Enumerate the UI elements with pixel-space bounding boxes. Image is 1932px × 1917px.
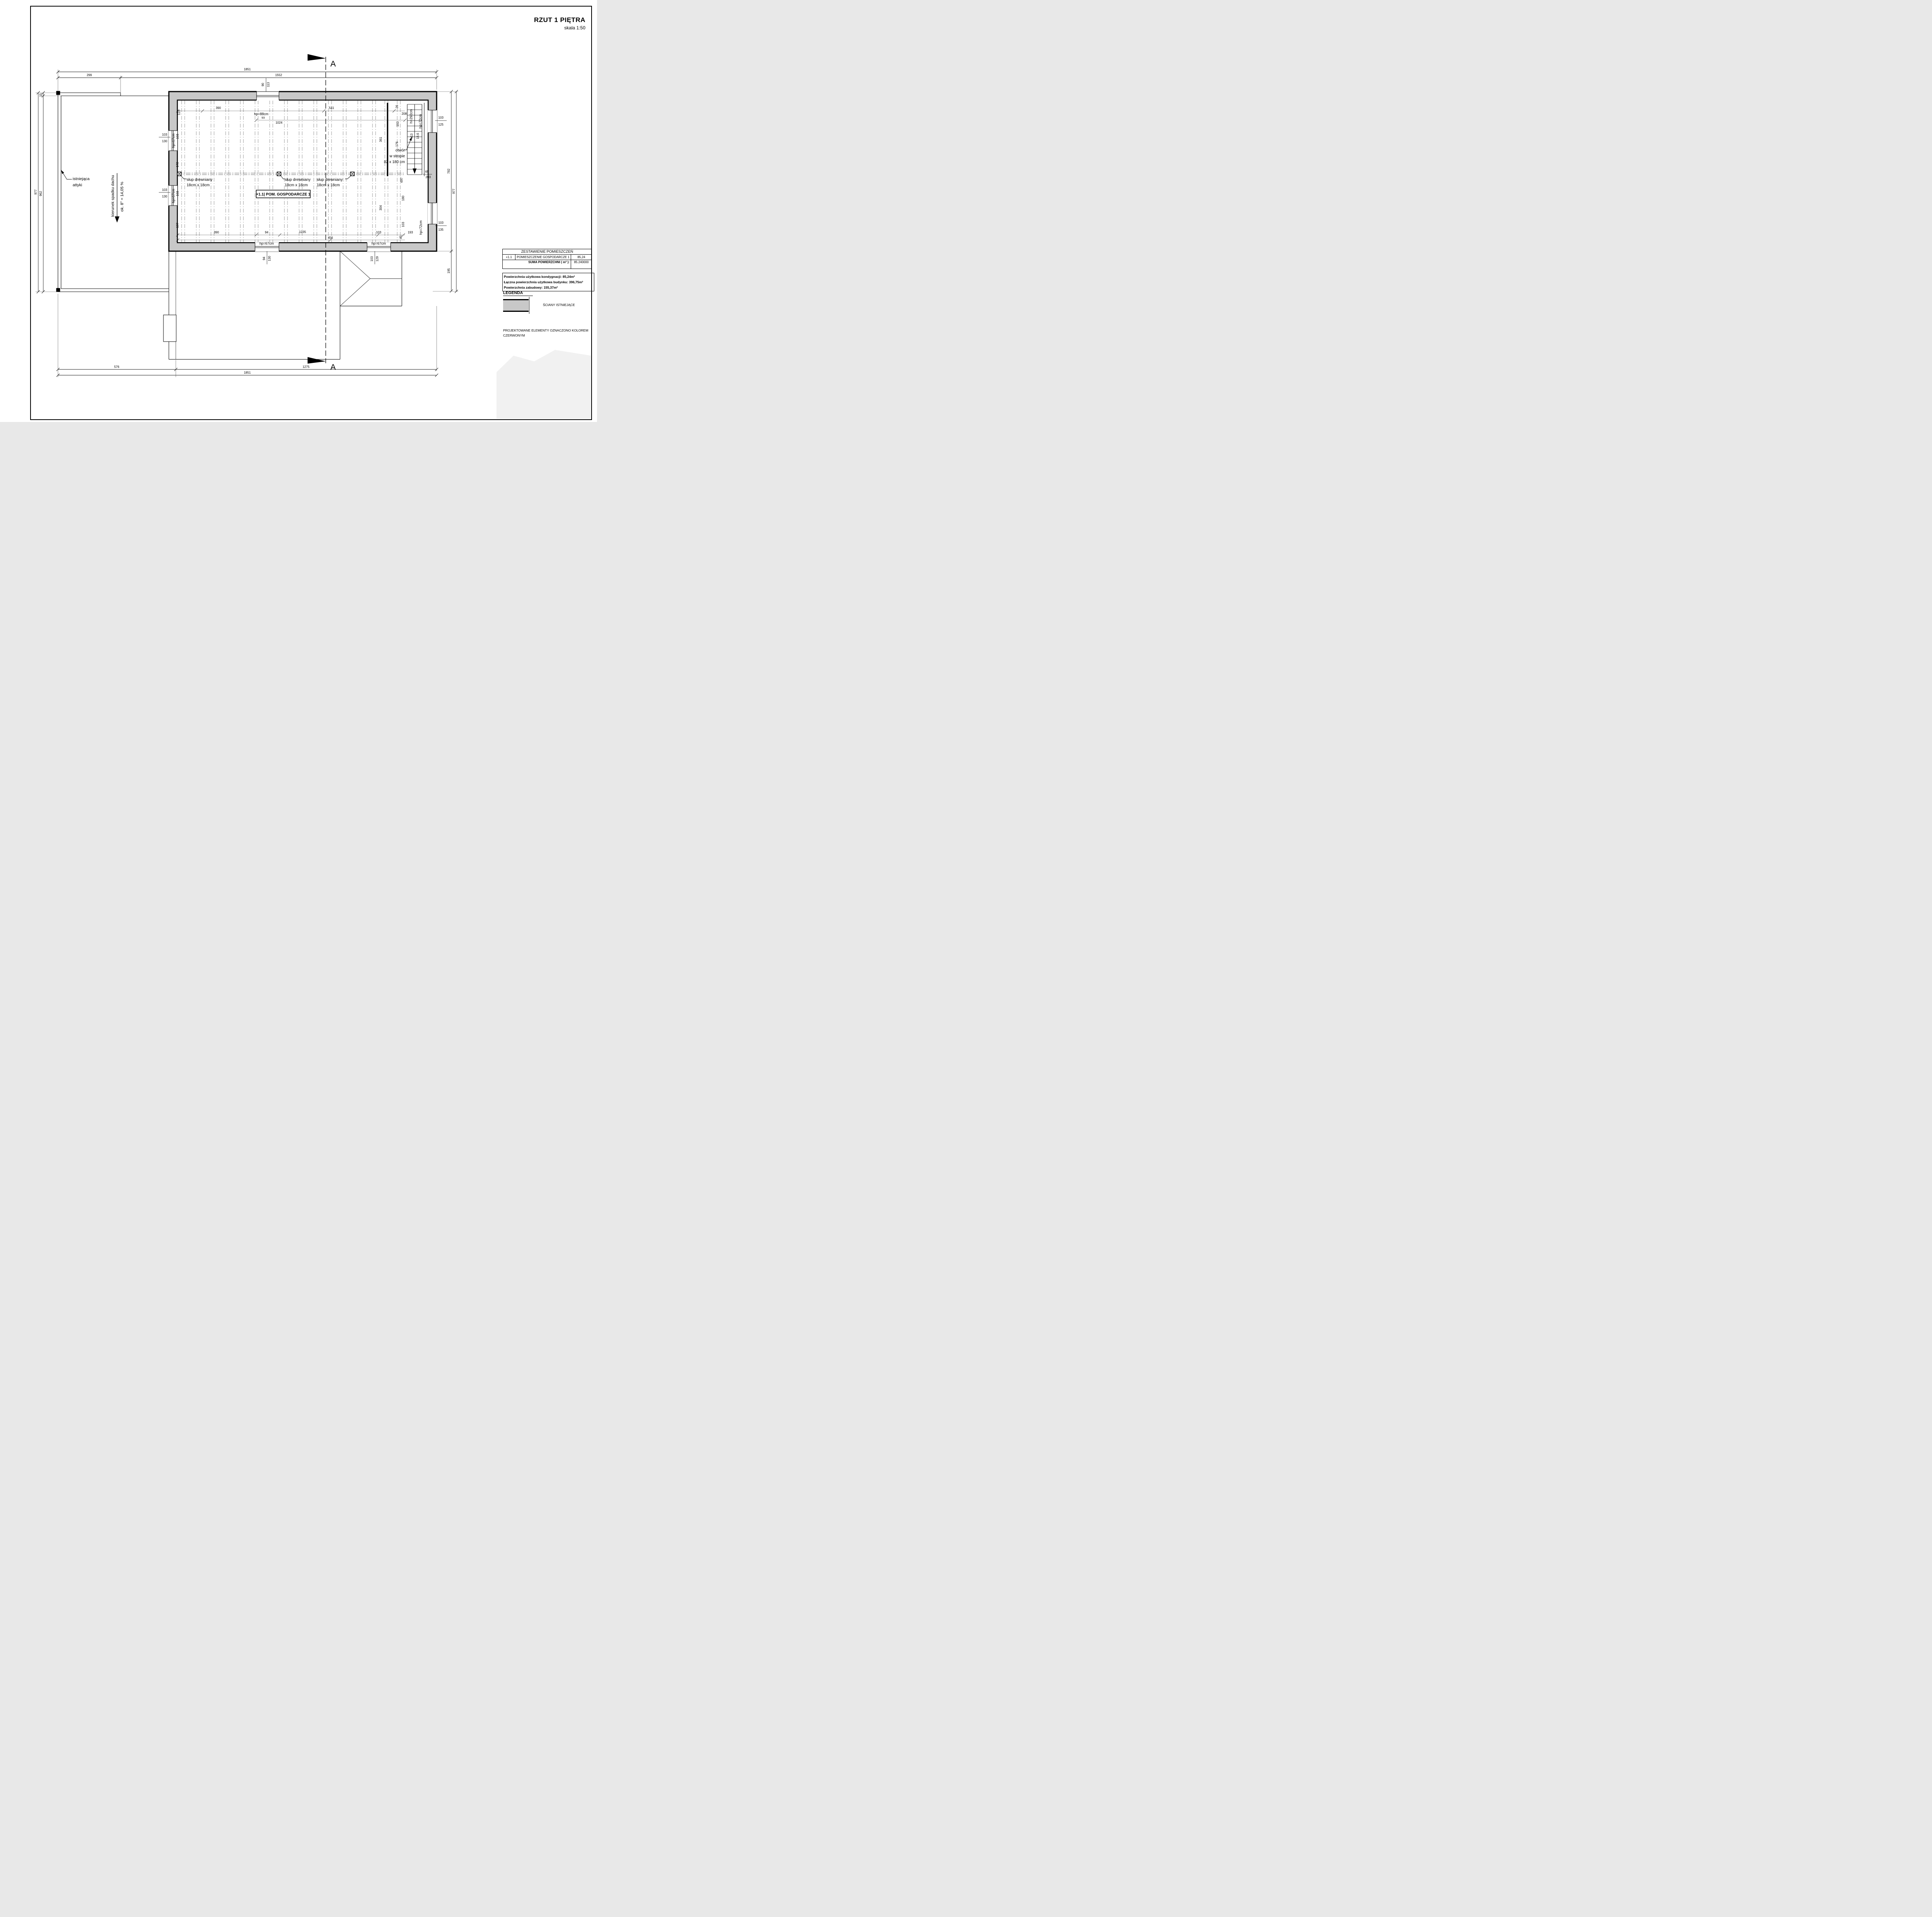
floor-plan: A A +1.1| POM. GOSPODARCZE 1 istniejąca … bbox=[0, 0, 597, 422]
dim-botwin1-w: 94 bbox=[262, 257, 266, 260]
existing-walls bbox=[169, 92, 437, 251]
post-label-3b: 18cm x 18cm bbox=[317, 183, 340, 187]
designed-elements-note: PROJEKTOWANE ELEMENTY OZNACZONO KOLOREM … bbox=[503, 328, 597, 338]
dim-i65: 65 bbox=[425, 170, 429, 173]
drawing-sheet: A A +1.1| POM. GOSPODARCZE 1 istniejąca … bbox=[0, 0, 597, 422]
dim-rightwin1-h: 125 bbox=[438, 123, 444, 126]
dim-i93: 93 bbox=[262, 116, 265, 119]
opening-note-line1: otwór bbox=[396, 148, 405, 153]
window-right-1 bbox=[428, 110, 437, 133]
dim-left-top: 15 bbox=[39, 93, 43, 97]
window-bottom-1 bbox=[255, 242, 279, 264]
room-name-cell: POMIESZCZENIE GOSPODARCZE 1 bbox=[515, 255, 571, 260]
roof-slope-note: ok. 8° = 14,05 % bbox=[120, 182, 124, 211]
dim-bb94: 94 bbox=[265, 231, 269, 234]
dim-botwin2-w: 103 bbox=[370, 256, 374, 262]
section-label-top: A bbox=[330, 60, 336, 68]
dim-topwin-h: 113 bbox=[267, 82, 270, 87]
dim-il172: 172 bbox=[176, 162, 179, 167]
table-title: ZESTAWIENIE POMIESZCZEŃ bbox=[503, 249, 592, 255]
window-right-2 bbox=[428, 203, 437, 224]
dim-rightwin1-w: 103 bbox=[438, 116, 444, 119]
dim-il103b: 103 bbox=[176, 191, 179, 196]
dim-left-outer: 977 bbox=[34, 189, 37, 195]
dim-bb1235: 1235 bbox=[299, 230, 306, 234]
dim-top-left: 299 bbox=[87, 73, 92, 77]
drawing-scale: skala 1:50 bbox=[534, 25, 585, 31]
dim-i180: 180 bbox=[401, 196, 405, 201]
dim-il103a: 103 bbox=[176, 134, 179, 139]
dim-bb103: 103 bbox=[376, 231, 381, 234]
drawing-title: RZUT 1 PIĘTRA bbox=[534, 16, 585, 24]
room-schedule-table: ZESTAWIENIE POMIESZCZEŃ +1.1 POMIESZCZEN… bbox=[502, 249, 592, 269]
dim-rightwin2-hp: hp=72cm bbox=[419, 220, 423, 235]
dim-botwin1-hp: hp=67cm bbox=[259, 242, 274, 245]
dim-i176: 176 bbox=[395, 141, 399, 147]
note-line-2: CZERWONYM bbox=[503, 333, 597, 338]
attic-note-line2: attyki bbox=[73, 183, 82, 187]
dim-botwin2-hp: hp=67cm bbox=[371, 242, 386, 245]
post-label-1b: 18cm x 18cm bbox=[187, 183, 209, 187]
post-label-1a: słup drewniany bbox=[187, 178, 213, 182]
dim-i390: 390 bbox=[216, 106, 221, 110]
dim-bottom-total: 1851 bbox=[244, 371, 251, 374]
room-label: +1.1| POM. GOSPODARCZE 1 bbox=[256, 192, 311, 197]
summary-line-2: Łączna powierzchnia użytkowa budynku: 39… bbox=[504, 279, 593, 285]
sum-value-cell: 85.240000 bbox=[571, 260, 592, 269]
section-flag-bottom bbox=[308, 357, 326, 364]
roof-slope-arrow bbox=[115, 216, 119, 223]
dim-il197: 197 bbox=[176, 223, 179, 228]
dim-i1024: 1024 bbox=[276, 121, 282, 124]
dim-bb45: 45 bbox=[399, 235, 403, 239]
dim-bb390: 390 bbox=[214, 231, 219, 234]
dim-bb456: 456 bbox=[328, 236, 333, 240]
post-label-2a: słup drewniany bbox=[285, 178, 311, 182]
dim-i697: 697 bbox=[400, 177, 403, 183]
window-top bbox=[257, 78, 279, 101]
lower-roof-outline bbox=[163, 251, 402, 359]
table-row: +1.1 POMIESZCZENIE GOSPODARCZE 1 85,24 bbox=[503, 255, 592, 260]
dim-right-upper: 782 bbox=[447, 168, 451, 174]
chimney bbox=[163, 315, 176, 342]
section-flag-top bbox=[308, 54, 326, 61]
dim-botwin2-h: 129 bbox=[376, 256, 379, 262]
dim-leftwin2-hp: hp=67cm bbox=[172, 189, 175, 203]
room-label-box: +1.1| POM. GOSPODARCZE 1 bbox=[256, 190, 311, 198]
dim-rightwin2-w: 103 bbox=[438, 221, 444, 225]
area-summary: Powierzchnia użytkowa kondygnacji: 85,24… bbox=[502, 273, 594, 291]
dim-right-outer: 977 bbox=[452, 189, 456, 194]
dim-leftwin1-h: 130 bbox=[162, 139, 167, 143]
room-id-cell: +1.1 bbox=[503, 255, 515, 260]
summary-line-3: Powierzchnia zabudowy: 155,37m² bbox=[504, 285, 593, 290]
dim-leftwin2-h: 130 bbox=[162, 195, 167, 198]
dim-i103-stair: 103 bbox=[396, 121, 400, 127]
dim-topwin-w: 90 bbox=[261, 83, 265, 86]
dim-i26: 26 bbox=[395, 105, 399, 108]
legend-swatch-tick bbox=[529, 297, 529, 314]
attic-leader-arrow bbox=[61, 170, 64, 174]
dim-leftwin2-w: 103 bbox=[162, 188, 167, 192]
dim-i361: 361 bbox=[379, 137, 383, 142]
roof-direction-note: kierunek spadku dachu bbox=[111, 175, 115, 217]
opening-note-line2: w stropie bbox=[389, 154, 405, 158]
dim-rightwin2-h: 135 bbox=[438, 228, 444, 231]
dim-left-main: 962 bbox=[39, 191, 43, 196]
dim-botwin1-h: 130 bbox=[268, 256, 271, 261]
dim-top-total: 1851 bbox=[244, 68, 251, 71]
note-line-1: PROJEKTOWANE ELEMENTY OZNACZONO KOLOREM bbox=[503, 328, 597, 333]
dim-right-lower: 195 bbox=[447, 268, 451, 274]
dim-leftwin1-w: 103 bbox=[162, 133, 167, 136]
dim-i103-right: 103 bbox=[401, 222, 405, 227]
existing-wall-swatch bbox=[503, 299, 529, 312]
title-block: RZUT 1 PIĘTRA skala 1:50 bbox=[534, 16, 585, 31]
stairs-count: x13 bbox=[410, 133, 413, 138]
stairs-going: 18,6 bbox=[416, 133, 420, 139]
summary-line-1: Powierzchnia użytkowa kondygnacji: 85,24… bbox=[504, 274, 593, 279]
dim-i122: 122 bbox=[177, 110, 181, 115]
post-label-2b: 18cm x 18cm bbox=[285, 183, 308, 187]
dim-leftwin1-hp: hp=67cm bbox=[172, 133, 175, 148]
sum-label-cell: SUMA POWIERZCHNI ( m² ): bbox=[503, 260, 571, 269]
dim-top-right: 1552 bbox=[275, 73, 282, 77]
dim-i203: 203 bbox=[425, 175, 431, 179]
table-sum-row: SUMA POWIERZCHNI ( m² ): 85.240000 bbox=[503, 260, 592, 269]
stairs-height: h=292cm bbox=[409, 109, 413, 123]
dim-i541: 541 bbox=[329, 106, 334, 110]
dim-i304: 304 bbox=[379, 205, 383, 211]
dim-bb193: 193 bbox=[408, 231, 413, 234]
opening-note-line3: 82 x 180 cm bbox=[384, 160, 405, 164]
dim-i208: 208 bbox=[401, 112, 407, 116]
legend-wall-label: ŚCIANY ISTNIEJĄCE bbox=[543, 303, 575, 307]
room-area-cell: 85,24 bbox=[571, 255, 592, 260]
dim-topwin-hp: hp=88cm bbox=[254, 112, 268, 116]
post-label-3a: słup drewniany bbox=[317, 178, 343, 182]
section-label-bottom: A bbox=[330, 363, 336, 372]
legend-title: LEGENDA bbox=[503, 291, 533, 296]
attic-note-line1: istniejąca bbox=[73, 177, 90, 181]
dim-bottom-left: 576 bbox=[114, 365, 119, 369]
dim-rightwin1-hp: hp=72cm bbox=[418, 114, 422, 128]
dim-bottom-right: 1275 bbox=[303, 365, 310, 369]
